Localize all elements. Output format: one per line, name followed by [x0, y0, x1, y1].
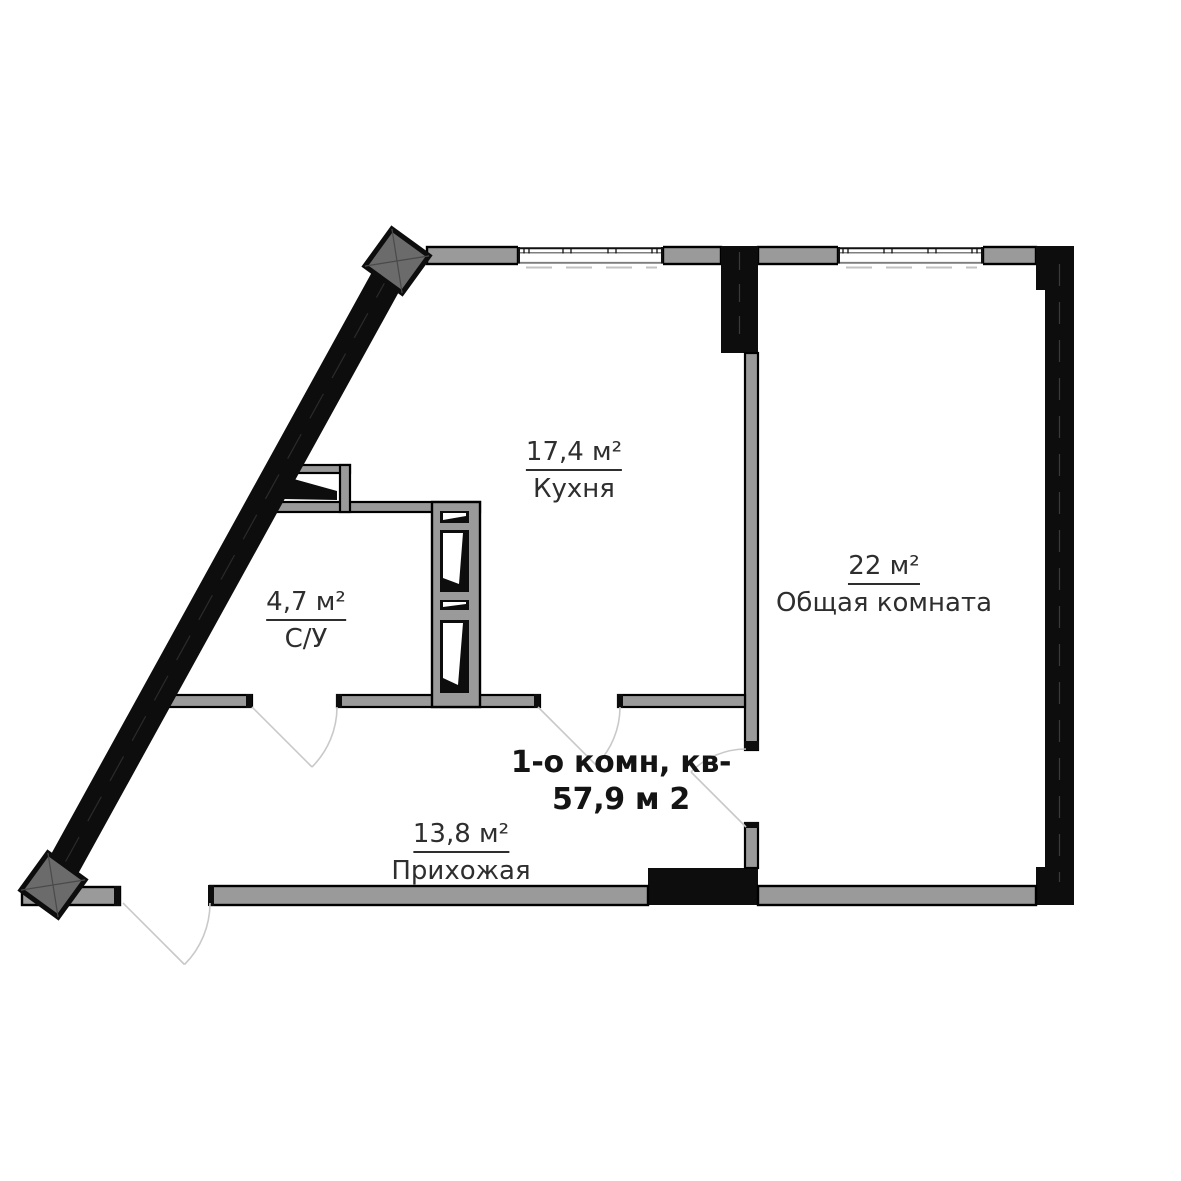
kitchen-name: Кухня	[526, 475, 622, 505]
kitchen-area: 17,4 м²	[526, 438, 622, 471]
hallway-area: 13,8 м²	[413, 820, 509, 853]
apartment-title-line2: 57,9 м 2	[511, 781, 731, 818]
bathroom-area: 4,7 м²	[266, 588, 346, 621]
partition-living	[744, 353, 759, 868]
diagonal-wall	[39, 253, 412, 893]
room-label-hallway: 13,8 м² Прихожая	[391, 820, 530, 887]
utility-shaft	[432, 502, 480, 707]
living-room-area: 22 м²	[848, 552, 919, 585]
apartment-title-line1: 1-о комн, кв-	[511, 744, 731, 781]
bathroom-name: С/У	[266, 625, 346, 655]
window-kitchen	[518, 245, 663, 268]
apartment-title: 1-о комн, кв- 57,9 м 2	[511, 744, 731, 818]
hallway-name: Прихожая	[391, 857, 530, 887]
floor-plan: 17,4 м² Кухня 4,7 м² С/У 22 м² Общая ком…	[0, 0, 1181, 1181]
room-label-bathroom: 4,7 м² С/У	[266, 588, 346, 655]
floor-plan-drawing	[0, 0, 1181, 1181]
room-label-kitchen: 17,4 м² Кухня	[526, 438, 622, 505]
window-living-room	[838, 245, 983, 268]
bathroom-door-arc	[312, 707, 337, 767]
entrance-door-arc	[185, 903, 211, 965]
bottom-wall	[22, 885, 1036, 906]
living-room-name: Общая комната	[776, 589, 992, 619]
room-label-living-room: 22 м² Общая комната	[776, 552, 992, 619]
